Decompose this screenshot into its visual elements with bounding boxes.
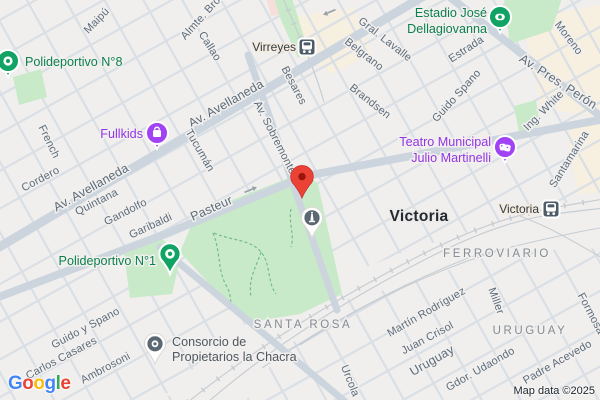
logo-letter: G bbox=[8, 373, 22, 394]
logo-letter: g bbox=[45, 373, 56, 394]
google-logo[interactable]: Google bbox=[8, 373, 70, 395]
logo-letter: e bbox=[60, 373, 70, 394]
poi-label-teatro-line1[interactable]: Teatro Municipal bbox=[399, 135, 491, 149]
map-data-attribution: Map data ©2025 bbox=[514, 385, 596, 397]
station-label-virreyes[interactable]: Virreyes bbox=[252, 40, 296, 54]
district-label-uruguay: URUGUAY bbox=[493, 325, 568, 337]
stadium-icon bbox=[495, 14, 505, 20]
marker-inner-dot bbox=[298, 173, 305, 180]
logo-letter: o bbox=[22, 373, 33, 394]
virreyes-station-icon[interactable] bbox=[299, 39, 316, 56]
station-label-victoria[interactable]: Victoria bbox=[499, 202, 539, 216]
logo-letter: o bbox=[33, 373, 44, 394]
map-canvas[interactable]: Maipú Almte. Brown Callao Besares Av. Av… bbox=[0, 0, 600, 400]
poi-label-fullkids[interactable]: Fullkids bbox=[100, 127, 143, 141]
locality-label-victoria[interactable]: Victoria bbox=[390, 208, 449, 225]
district-label-ferroviario: FERROVIARIO bbox=[443, 248, 551, 260]
poi-label-estadio-line1[interactable]: Estadio José bbox=[415, 6, 487, 20]
poi-label-polideportivo-8[interactable]: Polideportivo N°8 bbox=[25, 55, 122, 69]
map-svg[interactable]: Maipú Almte. Brown Callao Besares Av. Av… bbox=[0, 0, 600, 400]
poi-label-polideportivo-1[interactable]: Polideportivo N°1 bbox=[59, 254, 156, 268]
poi-label-consorcio-line2[interactable]: Propietarios la Chacra bbox=[172, 350, 297, 364]
sports-icon bbox=[3, 56, 12, 65]
poi-label-estadio-line2[interactable]: Dellagiovanna bbox=[407, 22, 487, 36]
poi-label-teatro-line2[interactable]: Julio Martinelli bbox=[411, 151, 491, 165]
victoria-station-icon[interactable] bbox=[543, 201, 560, 218]
office-icon bbox=[152, 340, 159, 347]
sports-icon bbox=[165, 249, 175, 259]
district-label-santa-rosa: SANTA ROSA bbox=[254, 319, 353, 331]
poi-label-consorcio-line1[interactable]: Consorcio de bbox=[172, 335, 246, 349]
